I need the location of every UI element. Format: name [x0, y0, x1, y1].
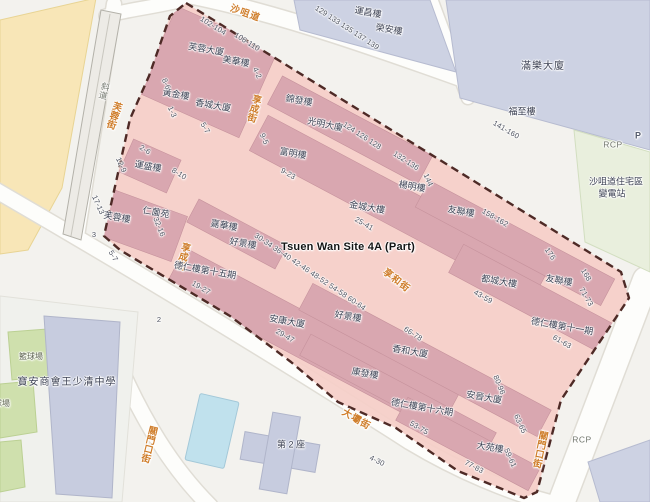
map-graphics [0, 0, 650, 502]
basketball-court-3 [0, 440, 25, 492]
school-building [44, 316, 120, 498]
map-canvas[interactable]: Tsuen Wan Site 4A (Part)沙咀道芙蓉街享成街享成街享和街大… [0, 0, 650, 502]
basketball-court-2 [0, 381, 37, 438]
